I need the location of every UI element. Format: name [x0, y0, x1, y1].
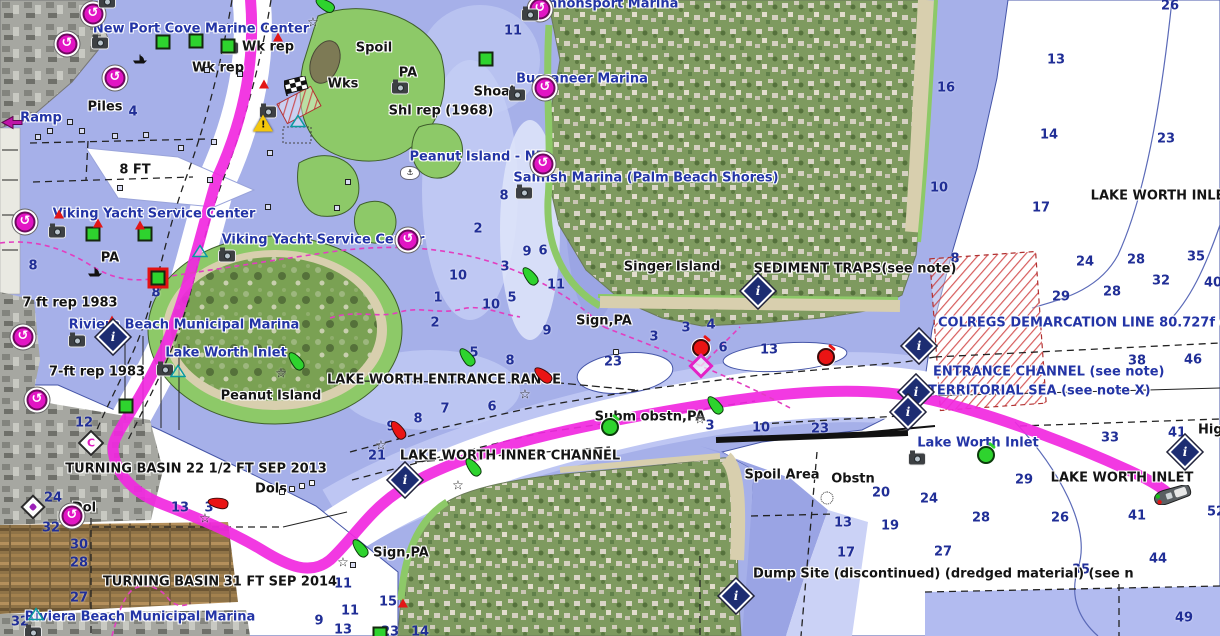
map-label: PA — [399, 66, 417, 81]
depth-sounding: 4 — [706, 318, 715, 333]
depth-sounding: 13 — [1047, 53, 1065, 68]
marina-poi-icon[interactable]: ↺ — [533, 154, 554, 175]
selected-marina-square-icon[interactable] — [151, 271, 166, 286]
depth-sounding: 3 — [681, 321, 690, 336]
depth-sounding: 10 — [930, 181, 948, 196]
pile-icon — [204, 67, 210, 73]
map-label: Ramp — [20, 111, 62, 126]
map-label: ENTRANCE CHANNEL (see note) — [933, 365, 1164, 380]
map-label: Obstn — [831, 472, 875, 487]
map-label: SEDIMENT TRAPS(see note) — [754, 262, 957, 277]
info-diamond-icon[interactable]: i — [719, 579, 753, 613]
depth-sounding: 52 — [1207, 505, 1220, 520]
nautical-chart-canvas[interactable]: New Port Cove Marine CenterCannonsport M… — [0, 0, 1220, 636]
marina-square-icon[interactable] — [156, 35, 171, 50]
map-label: Sign,PA — [576, 314, 632, 329]
anchorage-c-diamond-icon[interactable]: C — [78, 430, 105, 457]
pile-icon — [237, 71, 243, 77]
depth-sounding: 3 — [705, 419, 714, 434]
red-daymark-triangle-icon — [259, 80, 269, 89]
light-star-icon: ☆ — [452, 479, 464, 494]
map-label: Cannonsport Marina — [530, 0, 679, 12]
marina-poi-icon[interactable]: ↺ — [13, 327, 34, 348]
map-label: Singer Island — [624, 260, 721, 275]
pile-icon — [35, 134, 41, 140]
depth-sounding: 6 — [487, 400, 496, 415]
own-vessel-icon[interactable] — [1151, 485, 1193, 509]
green-buoy-icon[interactable] — [313, 0, 337, 15]
depth-sounding: 6 — [718, 341, 727, 356]
pile-icon — [207, 177, 213, 183]
depth-sounding: 41 — [1128, 509, 1146, 524]
range-triangle-icon — [192, 243, 208, 262]
map-label: Lake Worth Inlet — [165, 346, 287, 361]
depth-sounding: 13 — [760, 343, 778, 358]
small-boat-icon — [87, 263, 103, 282]
depth-sounding: 7 — [440, 402, 449, 417]
depth-sounding: 10 — [449, 269, 467, 284]
red-daymark-triangle-icon — [273, 33, 283, 42]
depth-sounding: 8 — [499, 189, 508, 204]
dolphin-icon — [289, 486, 295, 492]
depth-sounding: 16 — [937, 81, 955, 96]
depth-sounding: 8 — [28, 259, 37, 274]
depth-sounding: 26 — [1161, 0, 1179, 14]
depth-sounding: 14 — [1040, 128, 1058, 143]
green-lighted-buoy-icon[interactable] — [977, 446, 995, 464]
map-label: COLREGS DEMARCATION LINE 80.727f (see no… — [938, 316, 1220, 331]
depth-sounding: 35 — [1187, 250, 1205, 265]
depth-sounding: 13 — [834, 516, 852, 531]
map-label: Piles — [88, 100, 123, 115]
red-daymark-triangle-icon — [54, 210, 64, 219]
marina-square-icon[interactable] — [119, 399, 134, 414]
pile-icon — [79, 128, 85, 134]
green-lighted-buoy-icon[interactable] — [601, 418, 619, 436]
depth-sounding: 32 — [42, 521, 60, 536]
depth-sounding: 44 — [1149, 552, 1167, 567]
depth-sounding: 13 — [171, 501, 189, 516]
map-label: LAKE WORTH INNER CHANNEL — [400, 449, 620, 464]
depth-sounding: 2 — [430, 316, 439, 331]
marina-poi-icon[interactable]: ↺ — [535, 78, 556, 99]
green-buoy-icon[interactable] — [704, 393, 726, 416]
map-label: Riviera Beach Municipal Marina — [25, 610, 256, 625]
map-label: PA — [101, 251, 119, 266]
depth-sounding: 11 — [547, 278, 565, 293]
depth-sounding: 49 — [1175, 611, 1193, 626]
pile-icon — [143, 132, 149, 138]
marina-square-icon[interactable] — [221, 39, 236, 54]
marina-poi-icon[interactable]: ↺ — [105, 68, 126, 89]
light-star-icon: ☆ — [199, 512, 211, 527]
depth-sounding: 19 — [881, 519, 899, 534]
info-diamond-icon[interactable]: i — [741, 274, 775, 308]
depth-sounding: 11 — [341, 604, 359, 619]
red-daymark-triangle-icon — [135, 221, 145, 230]
dolphin-icon — [279, 489, 285, 495]
pile-icon — [211, 139, 217, 145]
map-label: Sailfish Marina (Palm Beach Shores) — [513, 171, 778, 186]
info-diamond-icon[interactable]: i — [388, 463, 422, 497]
info-diamond-icon[interactable]: i — [902, 329, 936, 363]
marina-poi-icon[interactable]: ↺ — [27, 390, 48, 411]
map-label: Peanut Island — [221, 389, 322, 404]
depth-sounding: 26 — [1051, 511, 1069, 526]
map-label: Spoil Area — [744, 468, 819, 483]
map-label: LAKE WORTH INLET — [1051, 471, 1194, 486]
camera-photo-icon[interactable] — [92, 38, 108, 49]
depth-sounding: 29 — [1052, 290, 1070, 305]
depth-sounding: 10 — [482, 298, 500, 313]
depth-sounding: 20 — [872, 486, 890, 501]
pile-icon — [47, 128, 53, 134]
map-label: Viking Yacht Service Center — [222, 233, 425, 248]
purple-diamond-icon[interactable] — [20, 494, 45, 519]
dolphin-icon — [309, 480, 315, 486]
checkered-flag-icon[interactable] — [284, 76, 310, 100]
marina-poi-icon[interactable]: ↺ — [62, 506, 83, 527]
dolphin-icon — [613, 349, 619, 355]
red-daymark-triangle-icon — [93, 219, 103, 228]
boat-ramp-icon — [1, 115, 23, 134]
depth-sounding: 32 — [1152, 274, 1170, 289]
light-star-icon: ☆ — [337, 556, 349, 571]
depth-sounding: 46 — [1184, 353, 1202, 368]
depth-sounding: 24 — [1076, 255, 1094, 270]
camera-photo-icon[interactable] — [69, 336, 85, 347]
dolphin-icon — [299, 483, 305, 489]
map-label: Shl rep (1968) — [389, 104, 494, 119]
light-star-icon: ☆ — [275, 367, 287, 382]
depth-sounding: 2 — [473, 222, 482, 237]
depth-sounding: 17 — [1032, 201, 1050, 216]
depth-sounding: 27 — [934, 545, 952, 560]
camera-photo-icon[interactable] — [909, 454, 925, 465]
camera-photo-icon[interactable] — [25, 628, 41, 636]
camera-photo-icon[interactable] — [219, 251, 235, 262]
camera-photo-icon[interactable] — [509, 90, 525, 101]
camera-photo-icon[interactable] — [516, 188, 532, 199]
wreck-icon: ⚓ — [400, 166, 420, 180]
marina-poi-icon[interactable]: ↺ — [57, 34, 78, 55]
pile-icon — [178, 145, 184, 151]
map-label: TERRITORIAL SEA (see note X) — [928, 384, 1151, 399]
depth-sounding: 9 — [542, 324, 551, 339]
chart-overlay-layer: New Port Cove Marine CenterCannonsport M… — [0, 0, 1220, 636]
map-label: TURNING BASIN 31 FT SEP 2014 — [103, 575, 337, 590]
waypoint-diamond-icon[interactable] — [688, 353, 713, 378]
depth-sounding: 14 — [411, 625, 429, 636]
depth-sounding: 33 — [1101, 431, 1119, 446]
depth-sounding: 27 — [70, 591, 88, 606]
depth-sounding: 8 — [505, 354, 514, 369]
map-label: Spoil — [356, 41, 393, 56]
depth-sounding: 15 — [379, 595, 397, 610]
depth-sounding: 24 — [44, 491, 62, 506]
depth-sounding: 29 — [1015, 473, 1033, 488]
depth-sounding: 30 — [70, 538, 88, 553]
map-label: 8 FT — [119, 163, 150, 178]
map-label: TURNING BASIN 22 1/2 FT SEP 2013 — [65, 462, 327, 477]
camera-photo-icon[interactable] — [99, 0, 115, 8]
camera-photo-icon[interactable] — [392, 83, 408, 94]
depth-sounding: 28 — [70, 556, 88, 571]
green-buoy-icon[interactable] — [349, 536, 371, 559]
depth-sounding: 28 — [1103, 285, 1121, 300]
range-triangle-icon — [170, 363, 186, 382]
depth-sounding: 28 — [1127, 253, 1145, 268]
depth-sounding: 9 — [314, 614, 323, 629]
obstruction-dotted-circle-icon — [821, 492, 834, 505]
depth-sounding: 23 — [1157, 132, 1175, 147]
map-label: Sign,PA — [373, 546, 429, 561]
pile-icon — [265, 204, 271, 210]
light-star-icon: ☆ — [519, 388, 531, 403]
map-label: 7-ft rep 1983 — [49, 365, 145, 380]
map-label: 7 ft rep 1983 — [22, 296, 117, 311]
depth-sounding: 8 — [151, 286, 160, 301]
depth-sounding: 11 — [504, 24, 522, 39]
pile-icon — [267, 150, 273, 156]
green-buoy-icon[interactable] — [285, 349, 307, 372]
map-label: Wks — [328, 77, 359, 92]
map-label: LAKE WORTH INLET — [1091, 189, 1220, 204]
pile-icon — [345, 179, 351, 185]
marina-square-icon[interactable] — [189, 34, 204, 49]
depth-sounding: 13 — [334, 623, 352, 636]
light-star-icon: ☆ — [307, 16, 319, 31]
range-triangle-icon — [28, 606, 44, 625]
map-label: Wk rep — [242, 40, 294, 55]
map-label: Hig — [1198, 423, 1220, 438]
depth-sounding: 3 — [500, 260, 509, 275]
depth-sounding: 23 — [604, 355, 622, 370]
marina-poi-icon[interactable]: ↺ — [15, 212, 36, 233]
depth-sounding: 6 — [538, 244, 547, 259]
red-daymark-triangle-icon — [398, 599, 408, 608]
depth-sounding: 23 — [811, 422, 829, 437]
depth-sounding: 17 — [837, 546, 855, 561]
light-star-icon: ☆ — [375, 439, 387, 454]
marina-square-icon[interactable] — [373, 627, 388, 636]
depth-sounding: 4 — [128, 105, 137, 120]
pile-icon — [350, 562, 356, 568]
pile-icon — [112, 133, 118, 139]
depth-sounding: 5 — [507, 291, 516, 306]
marina-square-icon[interactable] — [86, 227, 101, 242]
green-buoy-icon[interactable] — [519, 264, 541, 287]
depth-sounding: 28 — [972, 511, 990, 526]
small-boat-icon — [132, 50, 148, 69]
red-lighted-buoy-icon[interactable] — [817, 348, 835, 366]
pile-icon — [334, 205, 340, 211]
depth-sounding: 24 — [920, 492, 938, 507]
map-label: Peanut Island - NE — [410, 150, 545, 165]
map-label: Lake Worth Inlet — [917, 436, 1039, 451]
camera-photo-icon[interactable] — [49, 227, 65, 238]
range-triangle-icon — [290, 113, 306, 132]
depth-sounding: 10 — [752, 421, 770, 436]
marina-square-icon[interactable] — [479, 52, 494, 67]
map-label: Viking Yacht Service Center — [53, 207, 256, 222]
depth-sounding: 40 — [1204, 276, 1220, 291]
depth-sounding: 8 — [413, 412, 422, 427]
caution-triangle-icon: ! — [253, 115, 273, 132]
depth-sounding: 9 — [522, 245, 531, 260]
pile-icon — [67, 119, 73, 125]
depth-sounding: 3 — [649, 330, 658, 345]
map-label: LAKE WORTH ENTRANCE RANGE — [327, 373, 561, 388]
camera-photo-icon[interactable] — [522, 10, 538, 21]
map-label: Dump Site (discontinued) (dredged materi… — [753, 567, 1134, 582]
pile-icon — [117, 185, 123, 191]
marina-poi-icon[interactable]: ↺ — [398, 230, 419, 251]
depth-sounding: 1 — [433, 291, 442, 306]
light-star-icon: ☆ — [694, 413, 706, 428]
